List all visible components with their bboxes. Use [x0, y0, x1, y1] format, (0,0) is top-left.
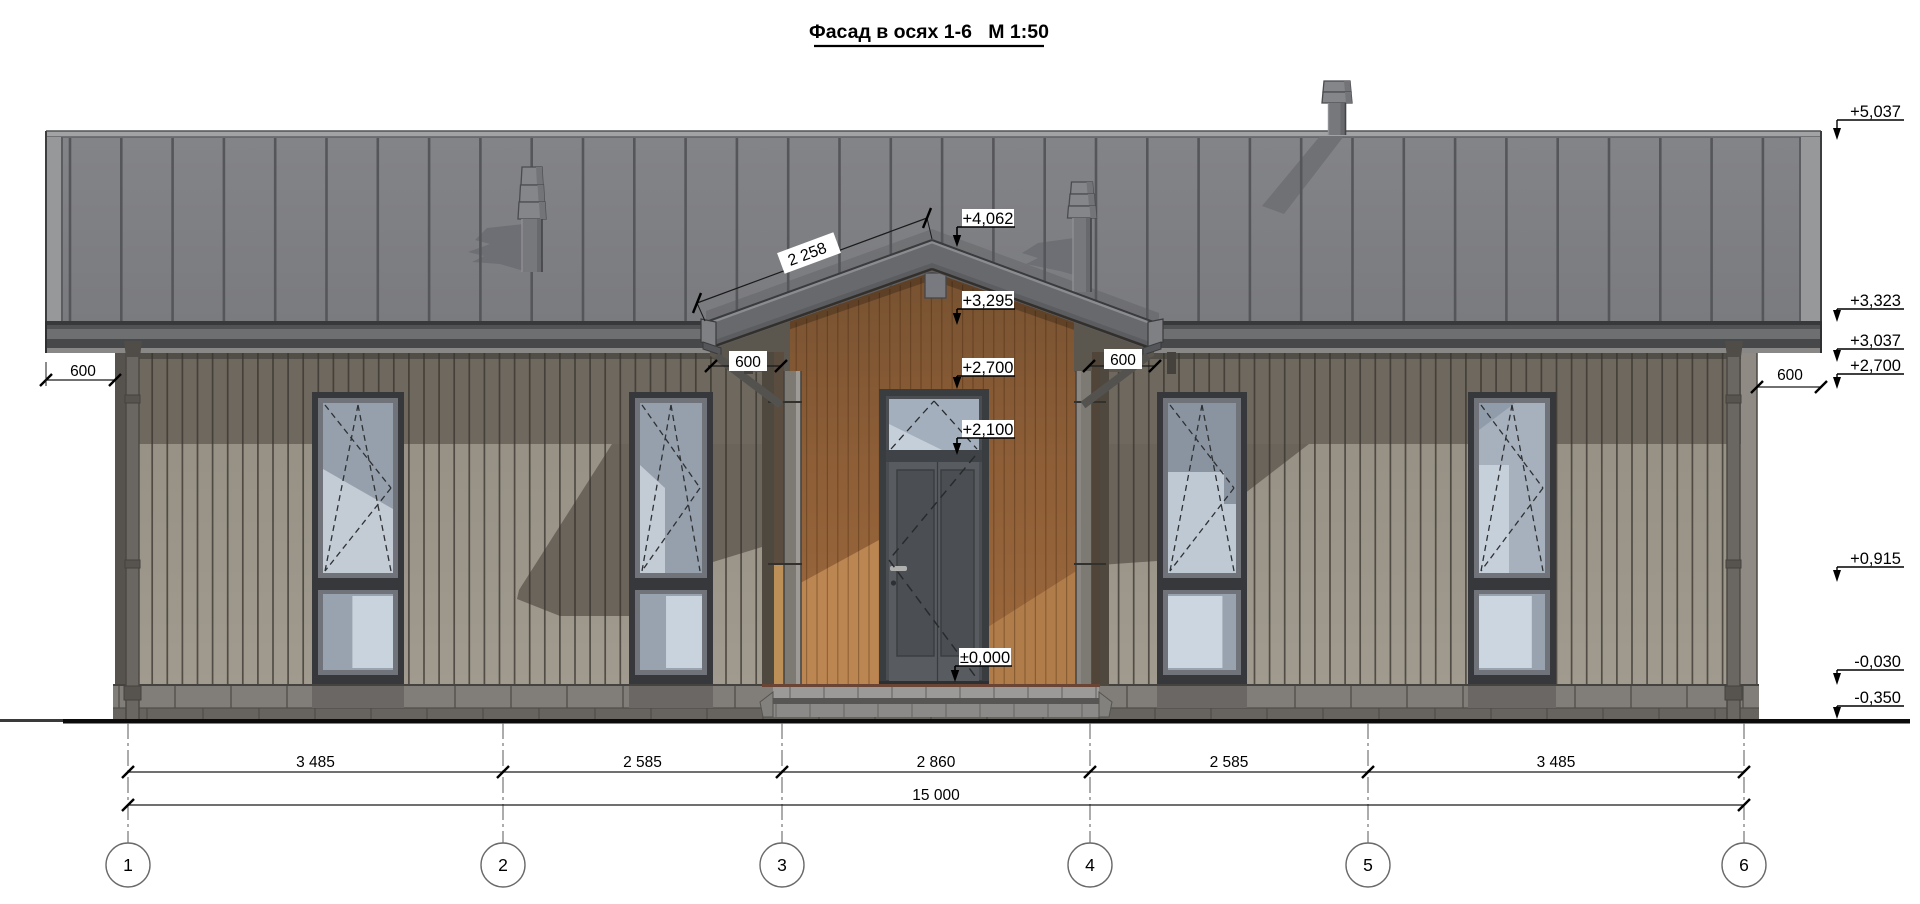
svg-text:600: 600: [1777, 367, 1803, 384]
svg-text:600: 600: [70, 363, 96, 380]
svg-text:+3,323: +3,323: [1850, 292, 1901, 310]
svg-text:2 585: 2 585: [623, 754, 662, 771]
svg-text:2 860: 2 860: [917, 754, 956, 771]
svg-text:3: 3: [777, 855, 787, 875]
svg-text:±0,000: ±0,000: [960, 649, 1010, 667]
svg-text:-0,030: -0,030: [1854, 653, 1901, 671]
svg-text:+0,915: +0,915: [1850, 550, 1901, 568]
svg-text:-0,350: -0,350: [1854, 689, 1901, 707]
svg-text:+2,700: +2,700: [1850, 357, 1901, 375]
svg-text:1: 1: [123, 855, 133, 875]
svg-text:600: 600: [735, 354, 761, 371]
svg-text:600: 600: [1110, 352, 1136, 369]
svg-text:+2,100: +2,100: [963, 421, 1014, 439]
svg-text:+2,700: +2,700: [963, 359, 1014, 377]
svg-text:4: 4: [1085, 855, 1095, 875]
svg-text:2 585: 2 585: [1210, 754, 1249, 771]
svg-text:Фасад в осях 1-6 М 1:50: Фасад в осях 1-6 М 1:50: [809, 21, 1049, 43]
svg-text:+3,037: +3,037: [1850, 332, 1901, 350]
svg-text:+4,062: +4,062: [963, 210, 1014, 228]
svg-text:15 000: 15 000: [912, 787, 960, 804]
svg-text:+5,037: +5,037: [1850, 103, 1901, 121]
svg-text:6: 6: [1739, 855, 1749, 875]
svg-text:3 485: 3 485: [296, 754, 335, 771]
svg-text:+3,295: +3,295: [963, 292, 1014, 310]
svg-text:5: 5: [1363, 855, 1373, 875]
svg-text:2: 2: [498, 855, 508, 875]
svg-text:3 485: 3 485: [1537, 754, 1576, 771]
